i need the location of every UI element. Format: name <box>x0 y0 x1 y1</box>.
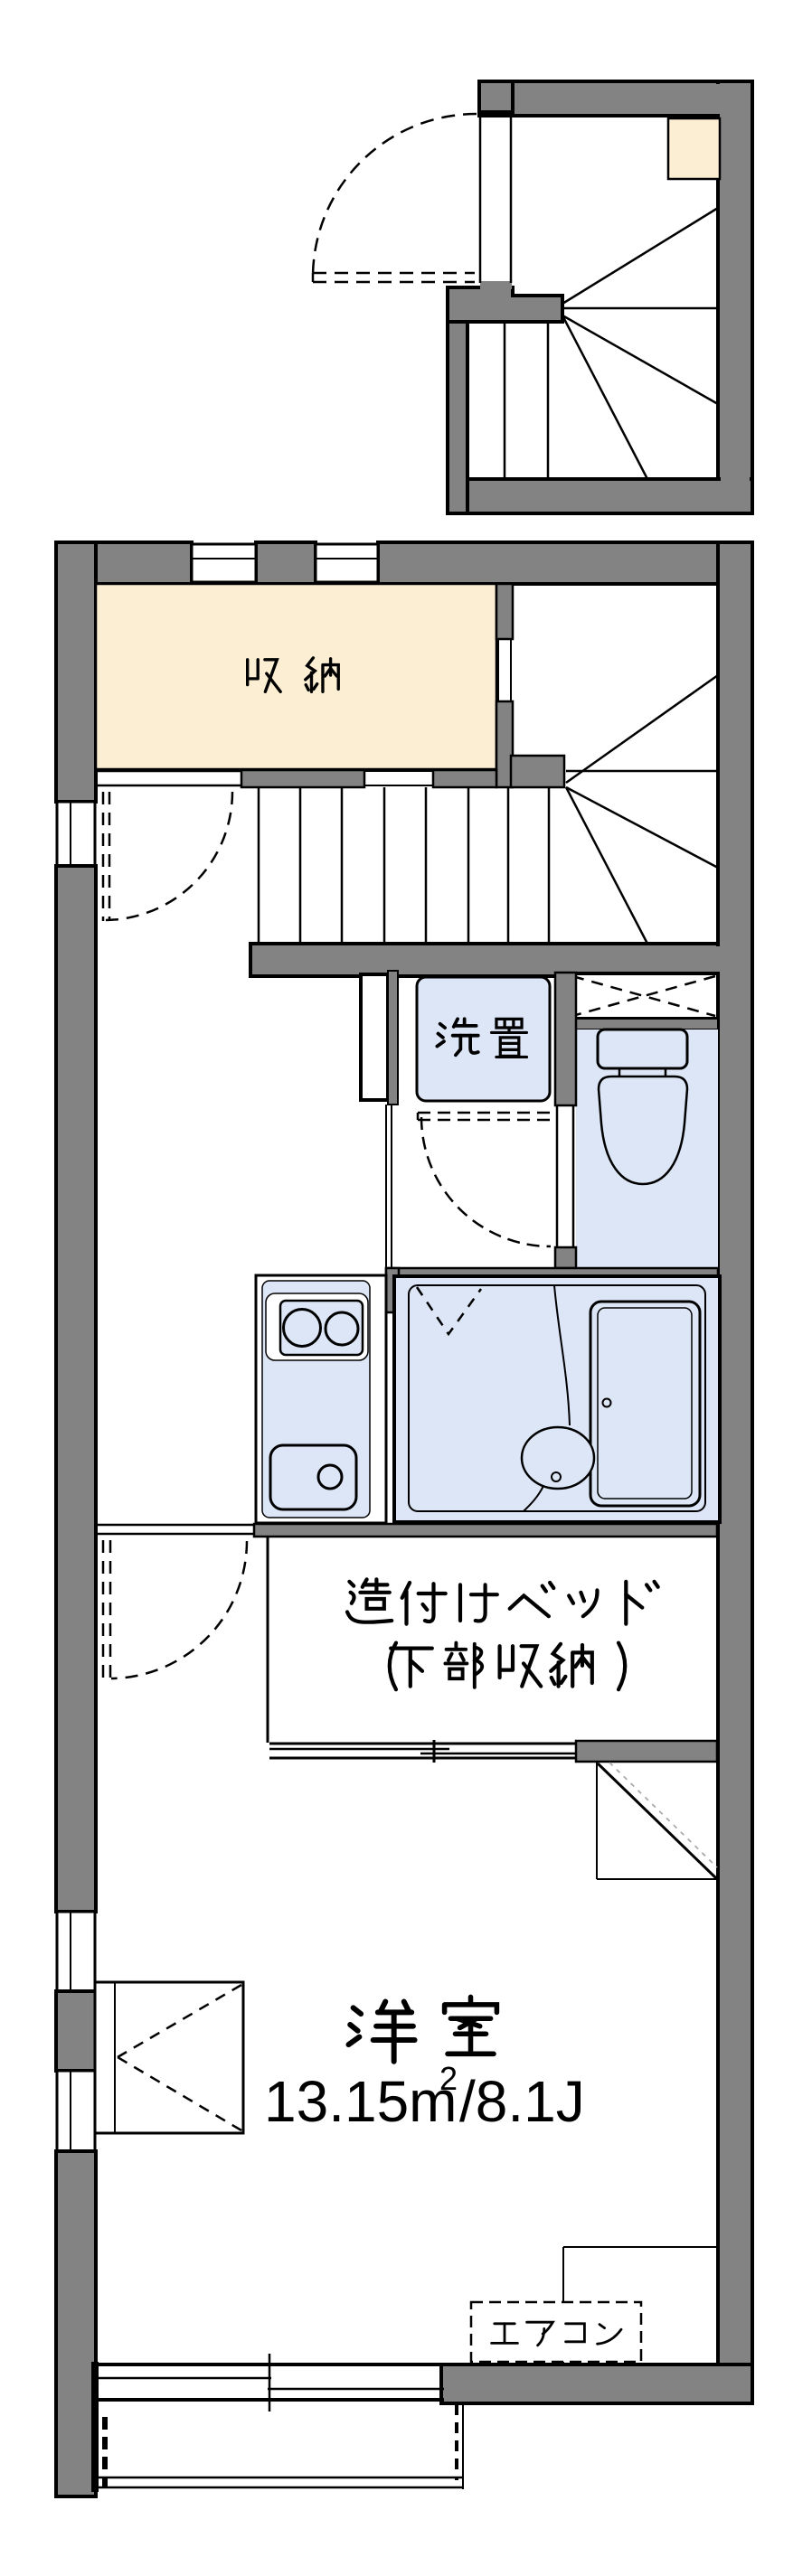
svg-text:13.15m: 13.15m <box>264 2069 457 2134</box>
svg-text:2: 2 <box>439 2060 458 2097</box>
svg-text:/8.1J: /8.1J <box>459 2069 585 2134</box>
